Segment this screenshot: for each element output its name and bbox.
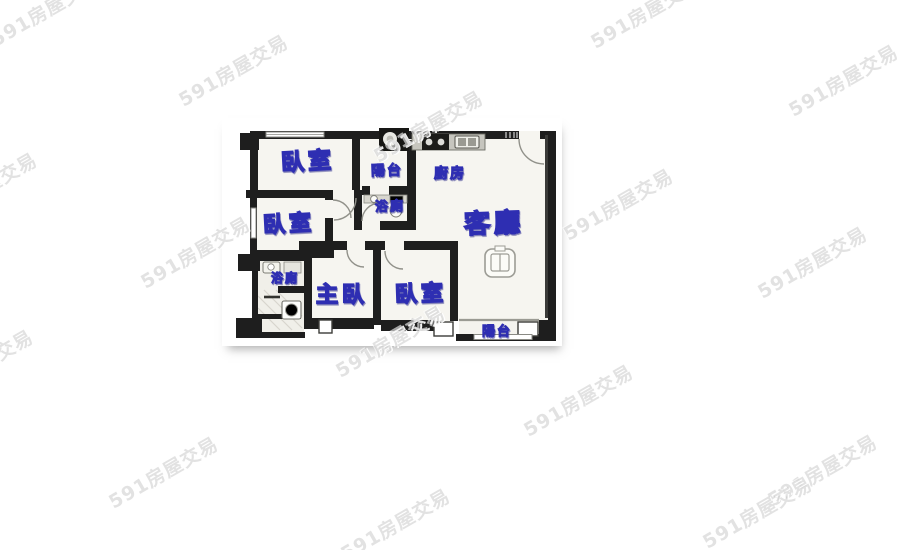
floor-plan-drawing: 臥室 陽台 廚房 浴廁 客廳 臥室 浴廁 主臥 臥室 陽台 — [222, 118, 562, 346]
room-label-balcony-top: 陽台 — [371, 161, 404, 179]
watermark-text: 591房屋交易 — [752, 220, 872, 305]
watermark-text: 591房屋交易 — [518, 358, 638, 443]
watermark-text: 591房屋交易 — [783, 38, 900, 123]
room-label-bedroom-left: 臥室 — [262, 210, 315, 239]
living-room-table-icon — [485, 246, 515, 277]
watermark-text: 591房屋交易 — [558, 162, 678, 247]
room-label-living-room: 客廳 — [463, 207, 524, 240]
watermark-text: 591房屋交易 — [0, 146, 42, 231]
watermark-text: 591房屋交易 — [335, 482, 455, 550]
room-label-bathroom-lower-left: 浴廁 — [271, 270, 299, 285]
room-label-balcony-bottom: 陽台 — [482, 324, 512, 340]
room-label-master-bedroom: 主臥 — [316, 283, 368, 308]
room-label-bathroom-middle: 浴廁 — [375, 198, 406, 215]
watermark-text: 591房屋交易 — [762, 428, 882, 513]
room-label-kitchen: 廚房 — [434, 165, 466, 182]
watermark-text: 591房屋交易 — [697, 470, 817, 550]
room-label-bedroom-top-left: 臥室 — [280, 147, 335, 177]
watermark-text: 591房屋交易 — [0, 323, 38, 408]
page: 臥室 陽台 廚房 浴廁 客廳 臥室 浴廁 主臥 臥室 陽台 591房屋交易591… — [0, 0, 900, 550]
room-label-bedroom-bottom: 臥室 — [395, 280, 448, 308]
watermark-text: 591房屋交易 — [585, 0, 705, 54]
floor-plan: 臥室 陽台 廚房 浴廁 客廳 臥室 浴廁 主臥 臥室 陽台 — [222, 118, 562, 346]
watermark-text: 591房屋交易 — [0, 0, 105, 52]
watermark-text: 591房屋交易 — [173, 28, 293, 113]
watermark-text: 591房屋交易 — [103, 430, 223, 515]
